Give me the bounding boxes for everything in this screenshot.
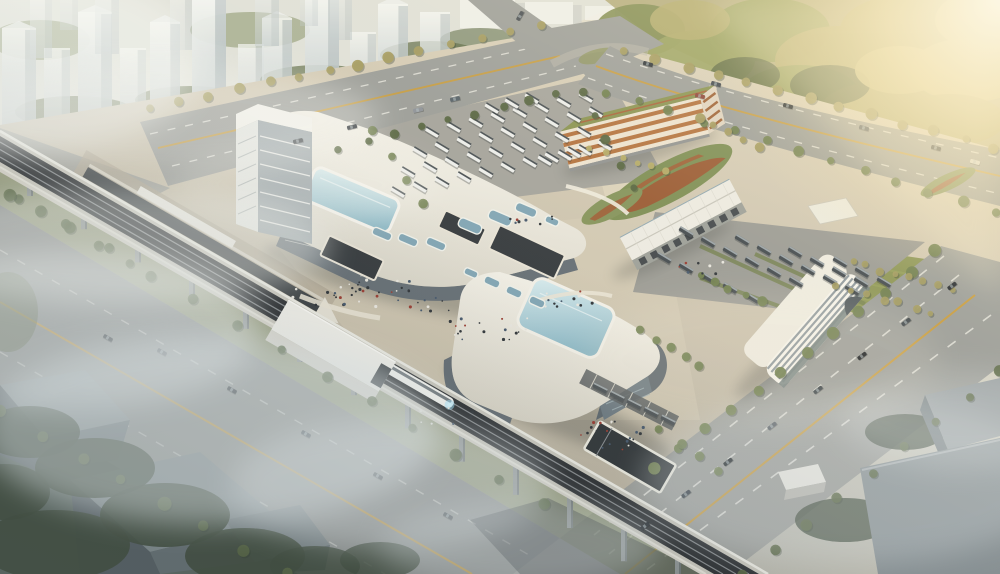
transit-hub-rendering: [0, 0, 1000, 574]
cool-shade-overlay: [0, 0, 1000, 574]
aerial-rendering-canvas: [0, 0, 1000, 574]
